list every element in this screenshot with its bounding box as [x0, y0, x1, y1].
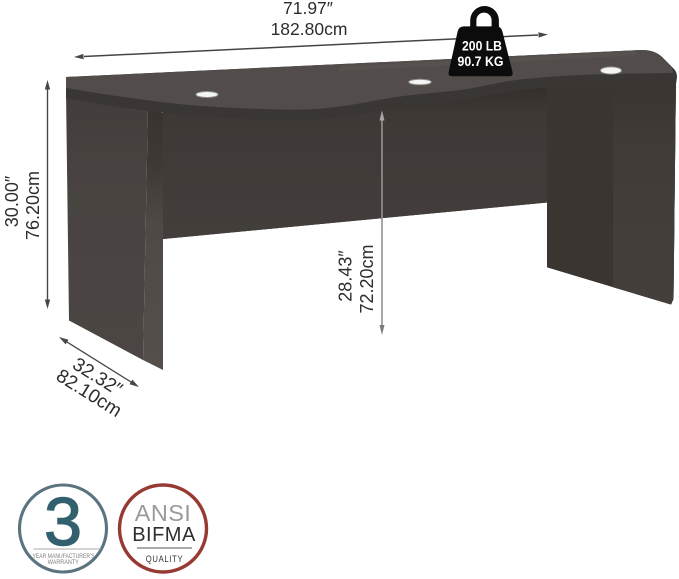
svg-text:90.7 KG: 90.7 KG — [458, 53, 504, 69]
svg-text:BIFMA: BIFMA — [132, 524, 196, 546]
svg-text:ANSI: ANSI — [135, 500, 191, 526]
svg-text:76.20cm: 76.20cm — [23, 171, 43, 240]
svg-text:72.20cm: 72.20cm — [357, 244, 377, 313]
svg-text:QUALITY: QUALITY — [146, 554, 184, 564]
svg-text:30.00″: 30.00″ — [2, 175, 22, 227]
svg-text:28.43″: 28.43″ — [336, 250, 356, 302]
svg-text:71.97″: 71.97″ — [283, 0, 333, 18]
svg-text:WARRANTY: WARRANTY — [48, 559, 80, 566]
svg-text:200 LB: 200 LB — [462, 38, 502, 54]
svg-text:182.80cm: 182.80cm — [271, 19, 348, 39]
